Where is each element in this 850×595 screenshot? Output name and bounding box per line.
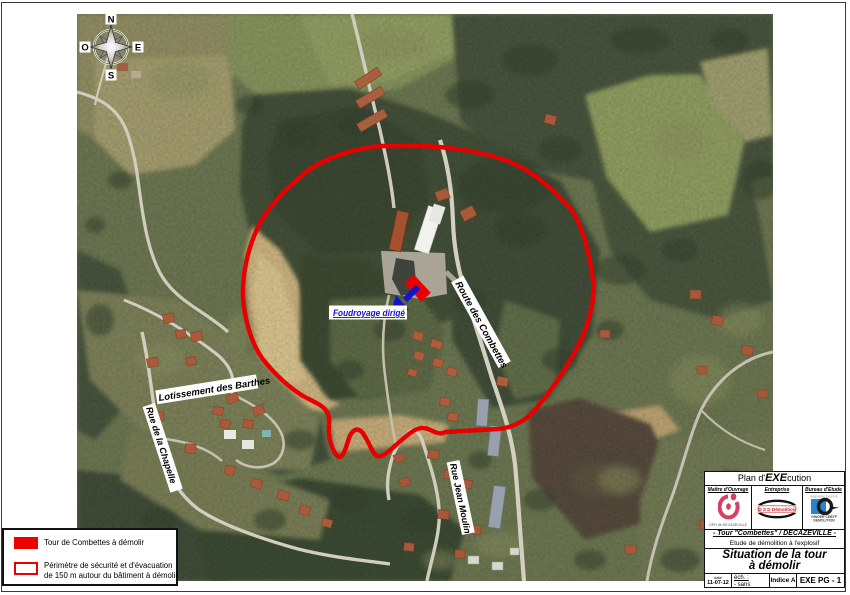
svg-text:DEMOLITION: DEMOLITION bbox=[813, 519, 835, 523]
svg-text:D S D Démolition: D S D Démolition bbox=[758, 507, 795, 512]
svg-text:O: O bbox=[81, 43, 88, 54]
svg-text:E: E bbox=[135, 43, 141, 54]
svg-text:S: S bbox=[108, 71, 114, 82]
svg-text:N: N bbox=[108, 15, 115, 26]
svg-text:Foudroyage dirigé: Foudroyage dirigé bbox=[333, 308, 405, 318]
